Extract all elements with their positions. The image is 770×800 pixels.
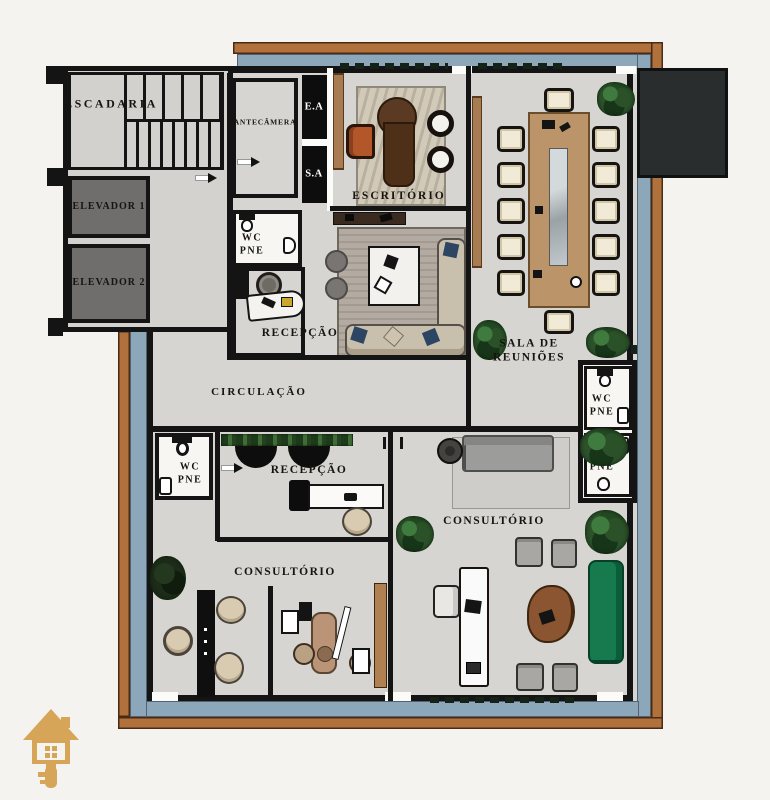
room-label-consultorio-esquerdo: CONSULTÓRIO — [234, 565, 336, 579]
sofa-pillow-3 — [443, 242, 460, 259]
window-opening-top-2 — [616, 66, 636, 74]
frame-wood-top — [233, 42, 663, 54]
reception-desk-return — [289, 480, 310, 511]
guest-chair-1 — [427, 110, 454, 137]
coffee-table — [368, 246, 420, 306]
room-label-sa: S.A — [305, 167, 323, 180]
side-stool-1 — [325, 250, 348, 273]
dental-stool-left — [293, 643, 315, 665]
wall-central-horizontal-left — [147, 426, 390, 432]
meeting-chair — [592, 126, 620, 152]
dental-chair — [311, 612, 337, 674]
room-label-elevador-1: ELEVADOR 1 — [73, 201, 146, 214]
room-label-antecamera: ANTECÂMERA — [234, 117, 297, 126]
meeting-chair — [497, 234, 525, 260]
dental-cabinet-white — [281, 610, 299, 634]
copa-desk-item-2 — [281, 297, 293, 307]
round-side-table — [437, 438, 463, 464]
plant-meeting-topright — [597, 82, 635, 116]
stair-flight-lower — [127, 122, 222, 168]
wall-stub-1 — [46, 66, 63, 84]
gray-sofa — [462, 435, 554, 472]
visitor-chair-4 — [552, 663, 578, 692]
hedge-recepcao — [221, 434, 353, 446]
side-stool-2 — [325, 277, 348, 300]
frame-band-left — [130, 331, 147, 717]
meeting-chair — [592, 270, 620, 296]
meeting-chair — [497, 126, 525, 152]
visitor-chair-2 — [551, 539, 577, 568]
table-item-5 — [570, 276, 582, 288]
room-label-wc-superior: WC PNE — [240, 233, 265, 258]
wc-line2: PNE — [590, 406, 615, 417]
room-label-escritorio: ESCRITÓRIO — [352, 189, 446, 203]
toilet-bowl-1 — [241, 219, 253, 232]
sink-icon-4 — [159, 477, 172, 495]
reception-desk-monitor — [344, 493, 357, 501]
dental-cabinet-black — [299, 602, 312, 621]
meeting-chair — [592, 234, 620, 260]
wall-recepcao2-right — [388, 426, 393, 701]
door-arrow-hall-stem — [196, 176, 208, 180]
floorplan-canvas: ESCADARIA ELEVADOR 1 ELEVADOR 2 ANTECÂME… — [0, 0, 770, 800]
house-key-icon — [20, 706, 82, 790]
meeting-chair-foot — [544, 310, 574, 334]
wall-recepcao2-left — [215, 431, 220, 541]
sink-icon-2 — [617, 407, 629, 424]
console-item-1 — [345, 214, 354, 221]
meeting-chair — [592, 162, 620, 188]
visitor-chair-3 — [516, 663, 544, 691]
dental-unit-box — [352, 648, 370, 674]
room-label-wc-direito-1: WC PNE — [590, 394, 615, 419]
frame-band-bottom — [130, 701, 639, 717]
office-chair-orange — [346, 124, 375, 159]
wood-cabinet-right — [374, 583, 387, 688]
table-item-3 — [535, 206, 543, 214]
wall-consultorio-divider — [268, 586, 273, 695]
wc-line2: PNE — [240, 245, 265, 256]
desk-office-chair — [433, 585, 460, 618]
sala-line2: REUNIÕES — [493, 352, 565, 364]
plant-consultorio-dir-2 — [585, 510, 629, 554]
doctor-chair — [163, 626, 193, 656]
wall-escritorio-right — [466, 66, 471, 430]
facade-shrubs-top-1 — [340, 63, 448, 69]
wall-recepcao2-bottom — [217, 537, 393, 542]
plant-meeting-bottomright — [586, 327, 630, 358]
room-label-wc-esquerdo: WC PNE — [178, 462, 203, 487]
door-arrow-antecamera-stem — [238, 160, 251, 164]
lounge-console — [333, 212, 406, 225]
facade-shrubs-bottom — [430, 697, 580, 703]
door-arrow-recepcao — [234, 463, 243, 473]
room-label-ea: E.A — [305, 100, 324, 113]
room-label-recepcao-superior: RECEPÇÃO — [262, 326, 339, 340]
table-item-1 — [542, 120, 555, 129]
escritorio-cabinet — [333, 73, 344, 170]
door-hinge-1 — [383, 437, 386, 449]
wall-central-horizontal-right — [390, 426, 578, 432]
meeting-chair — [497, 162, 525, 188]
wall-stub-3 — [48, 318, 63, 336]
patient-chair-1 — [216, 596, 246, 624]
room-label-escadaria: ESCADARIA — [64, 97, 158, 112]
door-opening-bottom-right — [597, 692, 623, 701]
wc-line2: PNE — [178, 474, 203, 485]
plant-consultorio-esq — [150, 556, 186, 600]
wall-lounge-bottom — [227, 355, 471, 360]
room-label-sala-reunioes: SALA DE REUNIÕES — [493, 337, 565, 366]
meeting-chair — [592, 198, 620, 224]
wc-line1: WC — [180, 462, 200, 473]
toilet-bowl-2 — [599, 374, 611, 387]
wall-escritorio-bottom — [330, 206, 471, 211]
door-arrow-antecamera — [251, 157, 260, 167]
escritorio-desk — [383, 122, 415, 187]
frame-wood-bottom — [118, 717, 663, 729]
facade-shrubs-top-2 — [478, 63, 564, 69]
room-label-elevador-2: ELEVADOR 2 — [73, 277, 146, 290]
dental-chair-head — [317, 646, 333, 662]
wc-line1: WC — [242, 233, 262, 244]
room-label-consultorio-direito: CONSULTÓRIO — [443, 514, 545, 528]
service-shaft-box — [637, 68, 728, 178]
conference-table-glass — [549, 148, 568, 266]
meeting-chair-head — [544, 88, 574, 112]
desk-laptop — [464, 599, 482, 614]
visitor-chair-1 — [515, 537, 543, 567]
door-opening-bottom-left — [152, 692, 178, 701]
toilet-bowl-3 — [597, 477, 610, 491]
reception-chair — [342, 507, 372, 536]
frame-wood-left — [118, 331, 130, 717]
door-hinge-2 — [400, 437, 403, 449]
door-arrow-recepcao-stem — [222, 466, 234, 470]
meeting-sideboard — [472, 96, 482, 268]
table-item-4 — [533, 270, 542, 278]
room-label-recepcao-inferior: RECEPÇÃO — [271, 463, 348, 477]
plant-consultorio-dir-3 — [580, 428, 628, 466]
meeting-chair — [497, 270, 525, 296]
green-sofa — [588, 560, 624, 664]
desk-phone — [466, 662, 481, 674]
meeting-chair — [497, 198, 525, 224]
plant-consultorio-dir-1 — [396, 516, 434, 552]
patient-chair-2 — [214, 652, 244, 684]
room-antecamera — [232, 78, 298, 198]
ea-sa-gap — [302, 139, 327, 146]
guest-chair-2 — [427, 146, 454, 173]
wall-exterior-left — [147, 331, 153, 701]
wc-line1: WC — [592, 394, 612, 405]
partition-dots — [204, 628, 207, 662]
door-arrow-hall — [208, 173, 217, 183]
toilet-bowl-4 — [176, 441, 189, 456]
wall-stub-2 — [47, 168, 63, 186]
sala-line1: SALA DE — [499, 338, 558, 350]
room-label-circulacao: CIRCULAÇÃO — [211, 386, 307, 400]
